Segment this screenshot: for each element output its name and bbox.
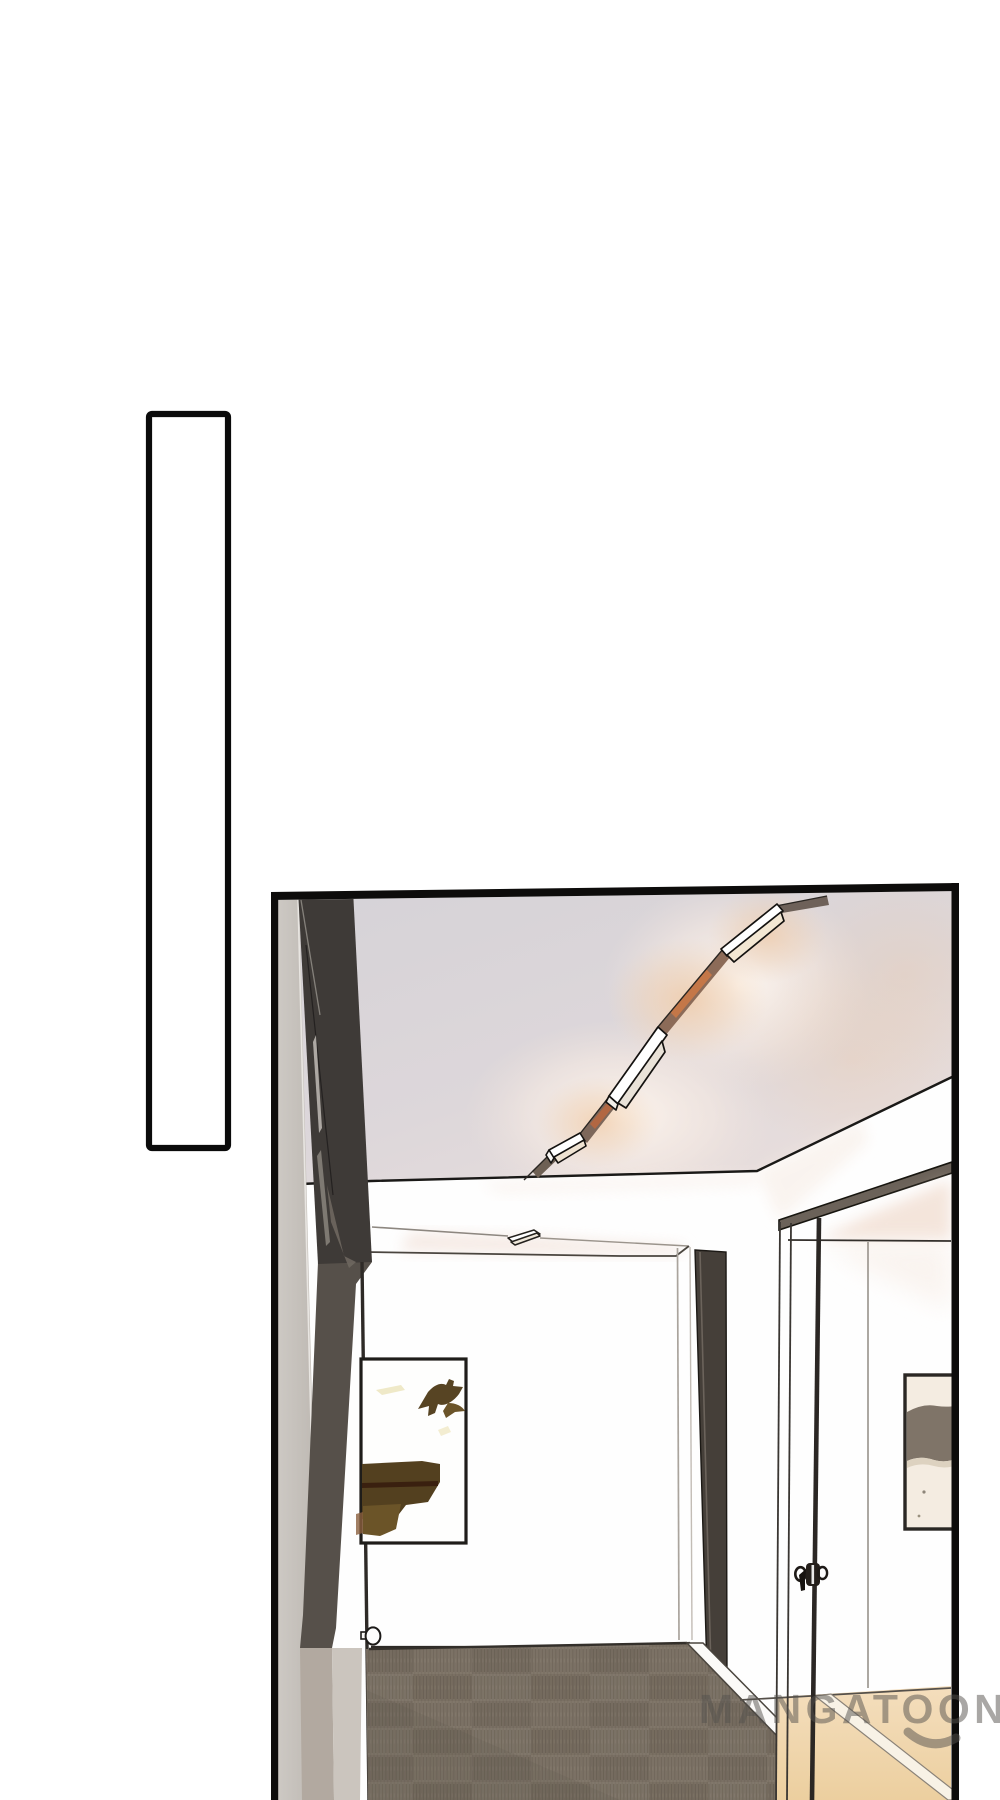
svg-text:MANGATOON: MANGATOON [699,1686,1000,1732]
